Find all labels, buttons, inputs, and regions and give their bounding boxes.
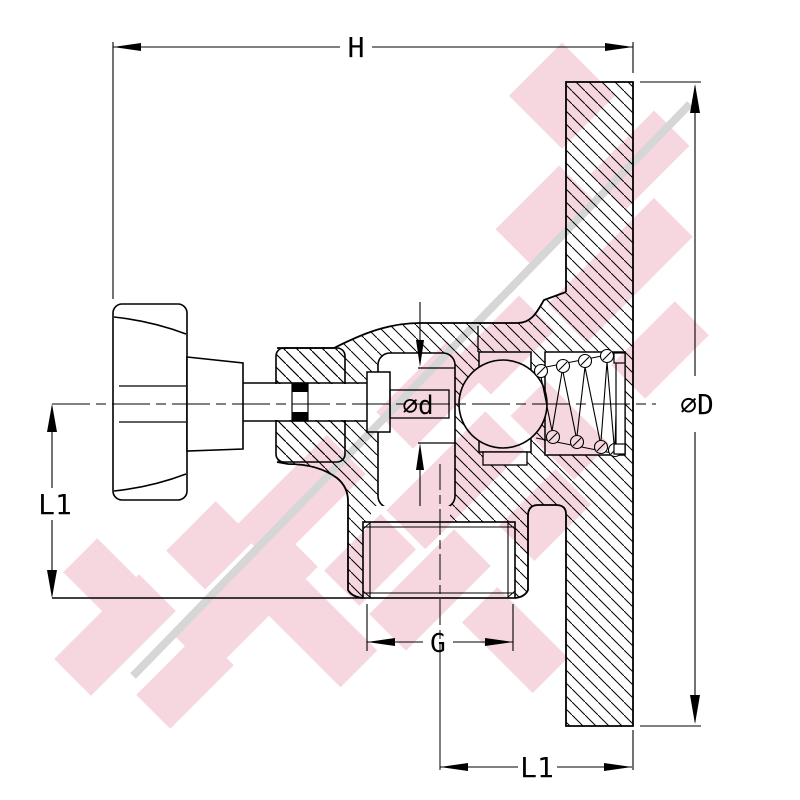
dim-label-G: G [430, 629, 446, 659]
arrowhead [47, 570, 57, 598]
knob-outline [113, 304, 187, 500]
gland-seal-top [292, 383, 308, 392]
dim-L1-bottom: L1 [440, 730, 633, 784]
arrowhead [440, 763, 468, 771]
handwheel [113, 304, 243, 500]
arrowhead [690, 695, 700, 724]
dim-label-L1-left: L1 [38, 488, 72, 521]
dim-label-H: H [348, 31, 365, 64]
retainer-bottom-corner [614, 444, 625, 454]
arrowhead [113, 43, 141, 51]
gland-seal-bottom [292, 412, 308, 421]
valve-section-drawing: H ∅D L1 ∅d G [0, 0, 800, 800]
arrowhead [604, 763, 632, 771]
arrowhead [690, 84, 700, 113]
dim-label-L1-bottom: L1 [520, 751, 554, 784]
arrowhead [605, 43, 633, 51]
technical-drawing-page: H ∅D L1 ∅d G [0, 0, 800, 800]
dim-label-OD: ∅D [680, 388, 714, 421]
arrowhead [47, 404, 57, 432]
